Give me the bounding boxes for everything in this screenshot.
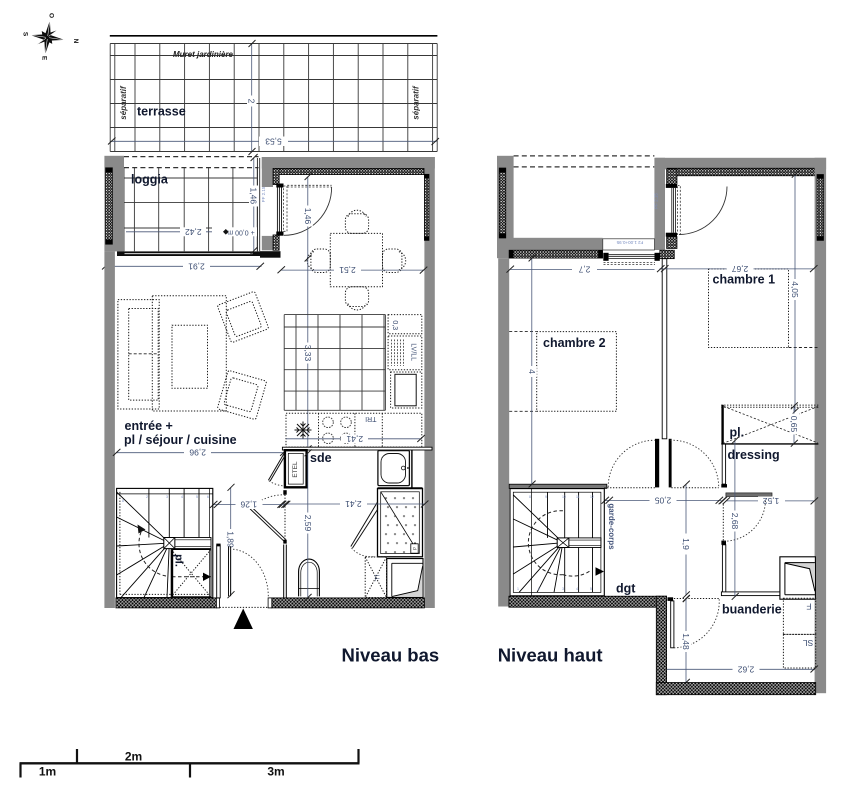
- svg-text:2,68: 2,68: [730, 513, 740, 530]
- svg-text:+ 0,00 m: + 0,00 m: [227, 228, 255, 235]
- svg-text:11: 11: [576, 495, 580, 499]
- svg-text:loggia: loggia: [131, 173, 169, 187]
- svg-text:9: 9: [545, 495, 547, 499]
- svg-text:2,67: 2,67: [731, 264, 748, 274]
- svg-text:F: F: [806, 602, 811, 612]
- svg-text:1,46: 1,46: [248, 188, 258, 205]
- svg-text:dgt: dgt: [616, 582, 636, 596]
- svg-text:1m: 1m: [39, 765, 56, 779]
- svg-text:séparatif: séparatif: [412, 85, 421, 120]
- svg-text:pl.: pl.: [173, 554, 185, 567]
- svg-text:8: 8: [122, 499, 124, 503]
- svg-text:séparatif: séparatif: [119, 85, 128, 120]
- svg-text:PF 2.15: PF 2.15: [261, 186, 266, 202]
- svg-text:3m: 3m: [267, 765, 284, 779]
- svg-text:SL: SL: [803, 638, 814, 648]
- svg-text:2,42: 2,42: [185, 227, 202, 237]
- svg-text:2: 2: [146, 495, 148, 499]
- svg-text:2,41: 2,41: [346, 434, 363, 444]
- svg-text:entrée +: entrée +: [125, 419, 173, 433]
- svg-text:LL: LL: [373, 575, 379, 582]
- svg-text:pl.: pl.: [730, 426, 745, 440]
- svg-text:3: 3: [166, 495, 168, 499]
- svg-text:TRI: TRI: [365, 415, 376, 422]
- svg-text:3,33: 3,33: [303, 345, 313, 362]
- svg-text:ETEL: ETEL: [292, 461, 299, 478]
- svg-text:8: 8: [529, 495, 531, 499]
- svg-text:4,05: 4,05: [790, 281, 800, 298]
- svg-text:Niveau haut: Niveau haut: [498, 645, 603, 666]
- svg-text:pl / séjour / cuisine: pl / séjour / cuisine: [124, 433, 237, 447]
- svg-text:1,26: 1,26: [240, 500, 257, 510]
- svg-text:2,59: 2,59: [303, 515, 313, 532]
- svg-text:4: 4: [527, 369, 537, 374]
- svg-text:chambre 2: chambre 2: [543, 336, 606, 350]
- svg-text:2,51: 2,51: [339, 265, 356, 275]
- svg-text:0,3: 0,3: [391, 320, 398, 330]
- svg-text:5,53: 5,53: [265, 136, 282, 146]
- svg-text:2m: 2m: [125, 750, 142, 764]
- svg-text:buanderie: buanderie: [722, 603, 782, 617]
- svg-text:N: N: [72, 39, 79, 44]
- svg-text:0,65: 0,65: [789, 416, 799, 433]
- svg-text:garde-corps: garde-corps: [607, 503, 616, 550]
- svg-text:12: 12: [590, 495, 594, 499]
- svg-text:4: 4: [181, 495, 183, 499]
- svg-text:1,46: 1,46: [303, 208, 313, 225]
- svg-text:F2 1.00+0.95: F2 1.00+0.95: [616, 240, 643, 245]
- svg-text:1,9: 1,9: [681, 538, 691, 550]
- svg-text:10: 10: [562, 495, 566, 499]
- svg-text:2,7: 2,7: [578, 264, 590, 274]
- svg-text:1,48: 1,48: [681, 633, 691, 650]
- svg-text:2,62: 2,62: [737, 664, 754, 674]
- svg-text:5: 5: [590, 587, 592, 591]
- svg-text:S: S: [22, 32, 29, 37]
- svg-text:E: E: [41, 56, 48, 61]
- svg-text:terrasse: terrasse: [137, 105, 186, 119]
- svg-text:1: 1: [517, 587, 519, 591]
- svg-text:2: 2: [247, 99, 257, 104]
- svg-text:2,41: 2,41: [345, 499, 362, 509]
- svg-text:6: 6: [207, 495, 209, 499]
- svg-text:3: 3: [562, 587, 564, 591]
- svg-text:PF 2.15: PF 2.15: [654, 193, 659, 209]
- svg-text:2: 2: [538, 587, 540, 591]
- svg-text:1,89: 1,89: [226, 531, 236, 548]
- svg-text:sde: sde: [310, 451, 332, 465]
- svg-text:LV/LL: LV/LL: [409, 343, 416, 361]
- svg-text:2,91: 2,91: [188, 261, 205, 271]
- svg-text:5: 5: [196, 495, 198, 499]
- svg-text:dressing: dressing: [728, 448, 780, 462]
- svg-text:Niveau bas: Niveau bas: [342, 645, 440, 666]
- svg-text:Muret jardinière: Muret jardinière: [173, 50, 234, 59]
- svg-text:4: 4: [576, 587, 578, 591]
- svg-text:O: O: [48, 13, 55, 18]
- svg-text:2,05: 2,05: [654, 495, 671, 505]
- svg-text:2,96: 2,96: [189, 448, 206, 458]
